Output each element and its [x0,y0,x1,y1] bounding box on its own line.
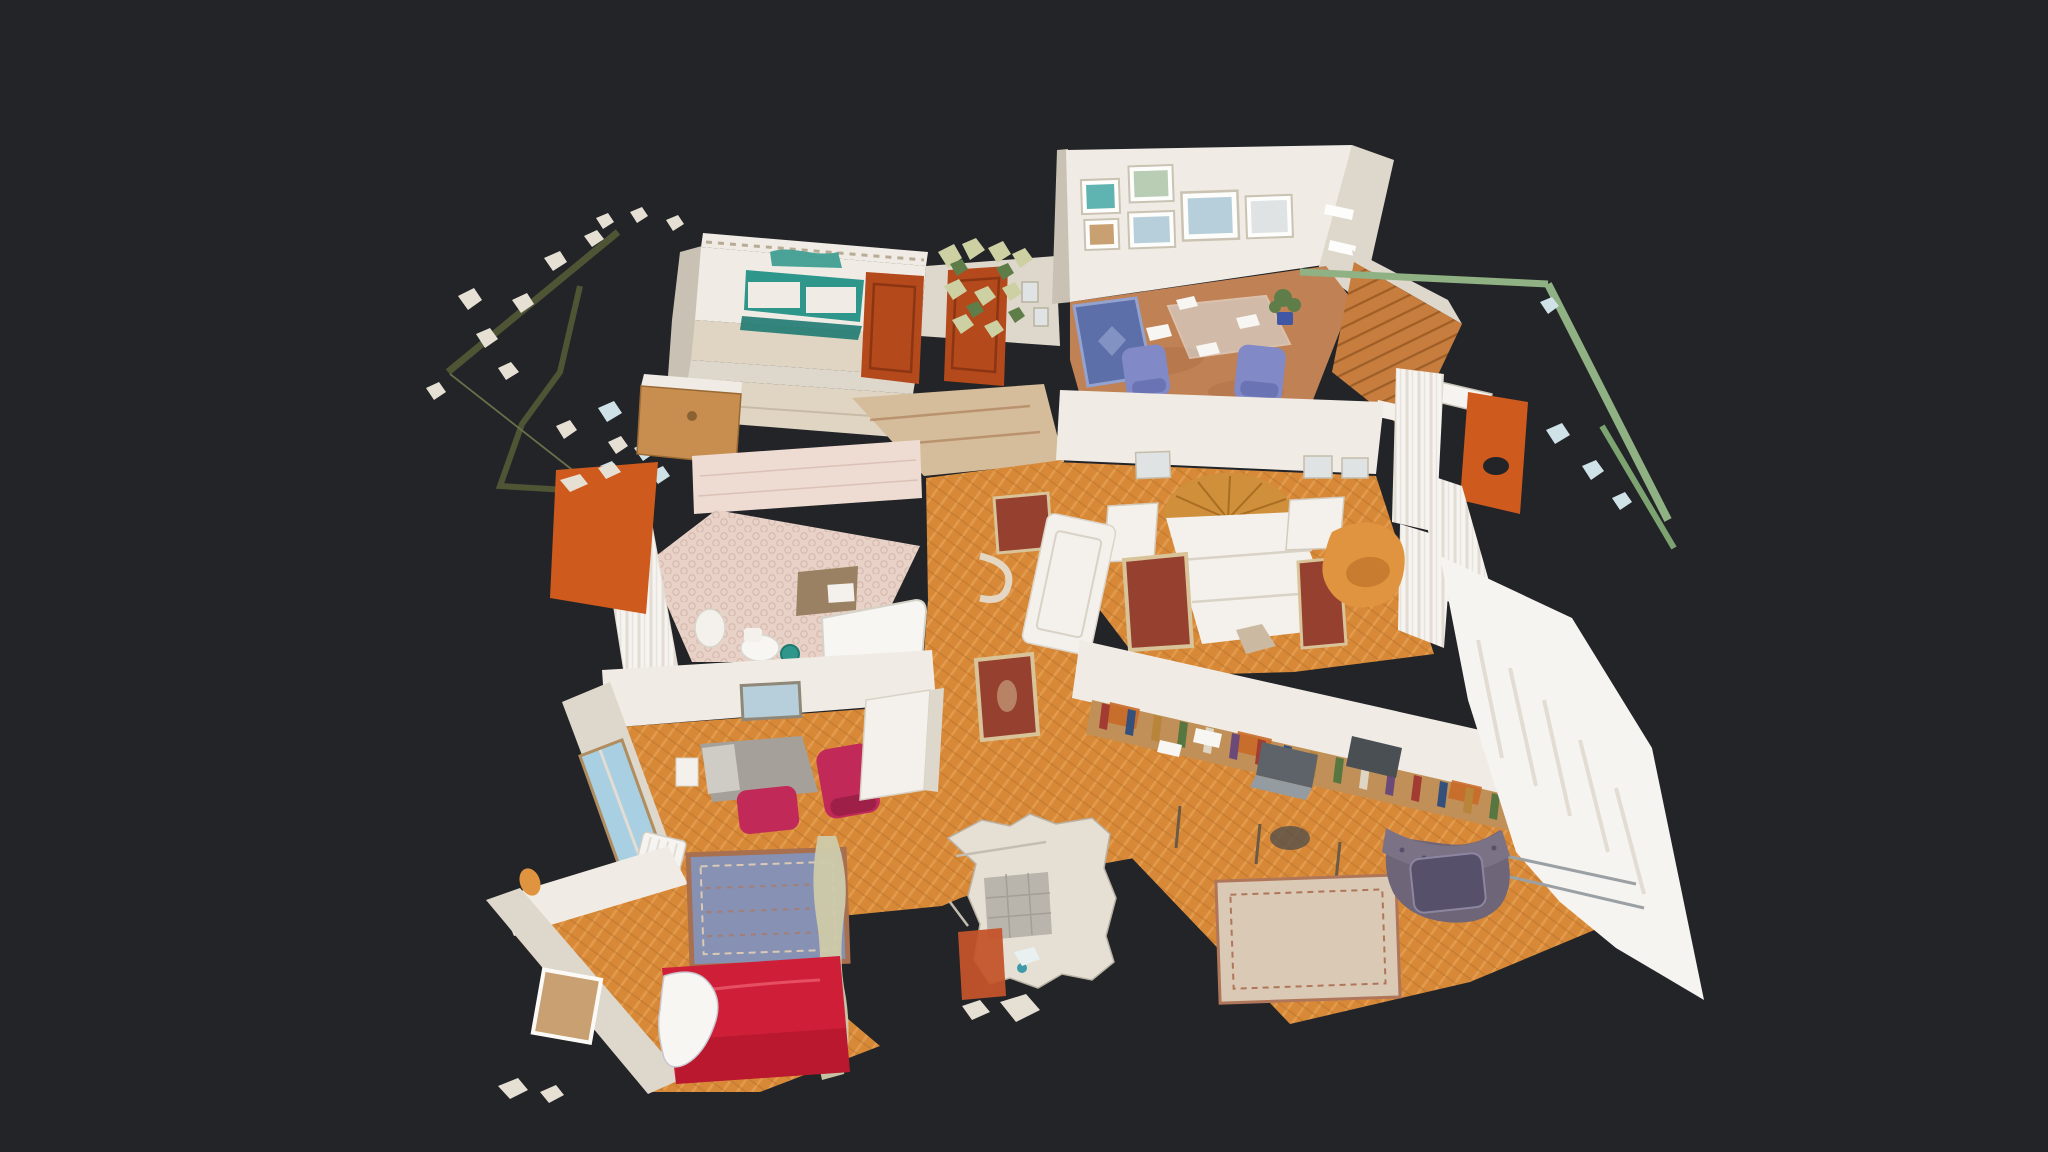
framed-picture [533,970,601,1043]
bedside-unit [676,758,698,786]
bedroom-back-wall [1056,390,1384,474]
toilet-tank [744,628,762,642]
cabinet-door [748,282,800,308]
study-pale-rug [1216,875,1400,1003]
panel-cutout [1483,457,1509,475]
door-knob [687,411,697,421]
box-in-hole [827,583,854,603]
dining-chair-right [1233,344,1287,405]
orange-fragment [958,928,1006,1000]
wall-mirror [741,683,801,720]
cabinet-door [806,287,856,313]
viewer-stage [0,0,2048,1152]
dining-chair-left [1121,343,1172,401]
armchair-cushion [1409,852,1486,913]
dollhouse-3d-canvas[interactable] [0,0,2048,1152]
grey-bed-pillow [702,744,740,794]
office-chair [1270,826,1310,850]
oriental-rug-left [1124,554,1192,650]
magenta-ottoman [736,785,800,835]
rug-motif [997,680,1017,712]
water-heater [695,609,725,647]
orange-panel-right [1460,392,1528,514]
white-door [860,690,930,800]
wood-cabinet-door [637,386,741,464]
